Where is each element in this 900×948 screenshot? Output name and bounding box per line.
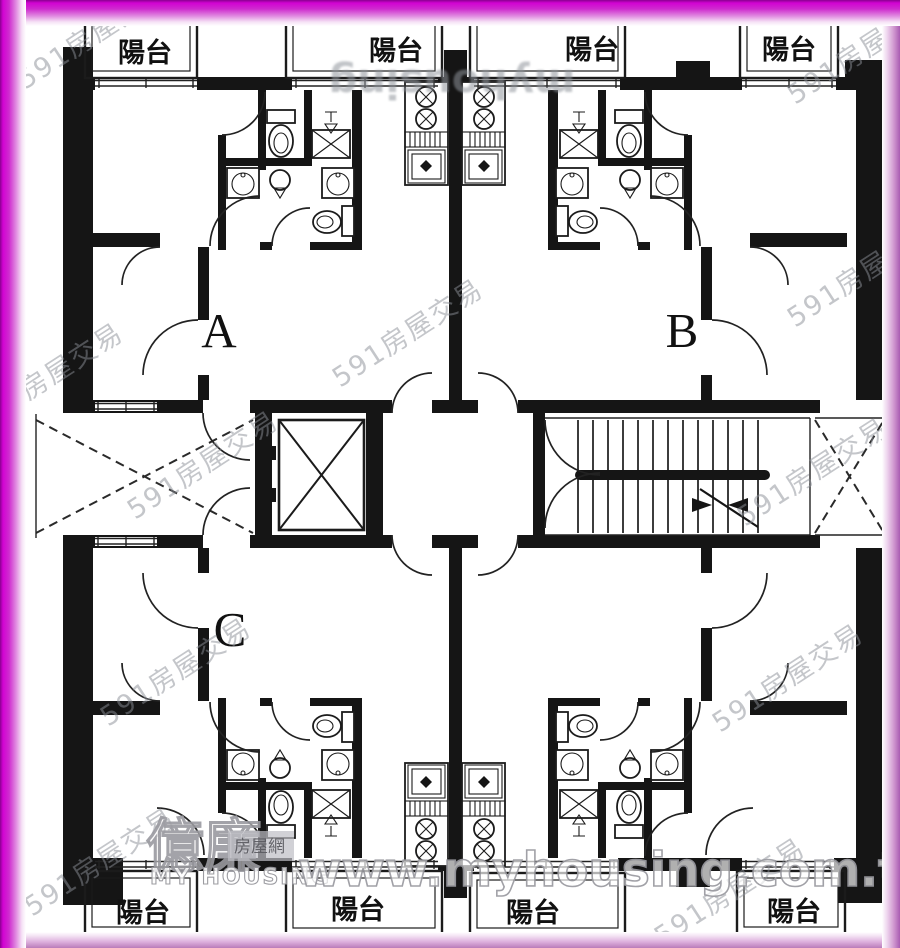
svg-text:591房屋交易: 591房屋交易 <box>707 618 869 739</box>
floor-plan-svg: 陽台 陽台 陽台 陽台 陽台 陽台 陽台 陽台 A B C 591房屋交易 59… <box>0 0 900 948</box>
balcony-label: 陽台 <box>767 896 821 927</box>
unit-d-interior <box>462 548 847 866</box>
frame-left <box>0 0 26 948</box>
balcony-label: 陽台 <box>118 37 172 68</box>
frame-bottom <box>0 932 900 948</box>
stair-handrail <box>575 470 770 480</box>
balcony-label: 陽台 <box>506 897 560 928</box>
floor-plan-image: 陽台 陽台 陽台 陽台 陽台 陽台 陽台 陽台 A B C 591房屋交易 59… <box>0 0 900 948</box>
svg-text:591房屋交易: 591房屋交易 <box>327 273 489 394</box>
balcony-label: 陽台 <box>116 897 170 928</box>
logo-badge-text: 房屋網 <box>234 837 285 857</box>
unit-b-interior <box>462 82 847 400</box>
watermark-flipped-fragment: myhousing <box>329 60 576 106</box>
unit-a-label: A <box>201 303 237 358</box>
balcony-label: 陽台 <box>331 894 385 925</box>
balcony-label: 陽台 <box>762 34 816 65</box>
watermark-url: www.myhousing.com.tw <box>298 843 900 898</box>
frame-right <box>882 0 900 948</box>
unit-b-label: B <box>666 303 699 358</box>
svg-text:591房屋交易: 591房屋交易 <box>95 612 257 733</box>
frame-top <box>0 0 900 26</box>
